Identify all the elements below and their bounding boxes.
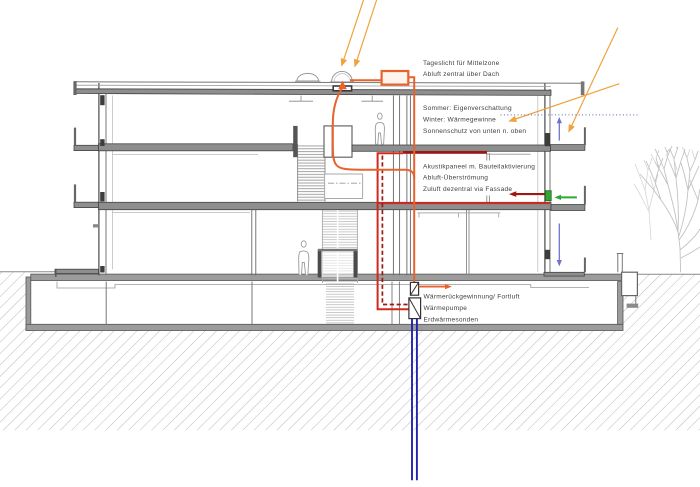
svg-text:Winter: Wärmegewinne: Winter: Wärmegewinne (423, 117, 496, 124)
svg-text:Akustikpaneel m. Bauteilaktivi: Akustikpaneel m. Bauteilaktivierung (423, 163, 535, 170)
svg-text:Zuluft dezentral via Fassade: Zuluft dezentral via Fassade (423, 186, 512, 193)
svg-text:Sonnenschutz von unten n. oben: Sonnenschutz von unten n. oben (423, 128, 526, 135)
svg-text:Tageslicht für Mittelzone: Tageslicht für Mittelzone (423, 60, 500, 67)
svg-text:Wärmepumpe: Wärmepumpe (424, 305, 468, 312)
svg-text:Abluft zentral über Dach: Abluft zentral über Dach (423, 71, 499, 78)
svg-text:Sommer: Eigenverschattung: Sommer: Eigenverschattung (423, 105, 512, 112)
svg-text:Abluft-Überströmung: Abluft-Überströmung (423, 174, 488, 182)
svg-text:Erdwärmesonden: Erdwärmesonden (424, 317, 479, 324)
svg-text:Wärmerückgewinnung/ Fortluft: Wärmerückgewinnung/ Fortluft (424, 294, 520, 301)
